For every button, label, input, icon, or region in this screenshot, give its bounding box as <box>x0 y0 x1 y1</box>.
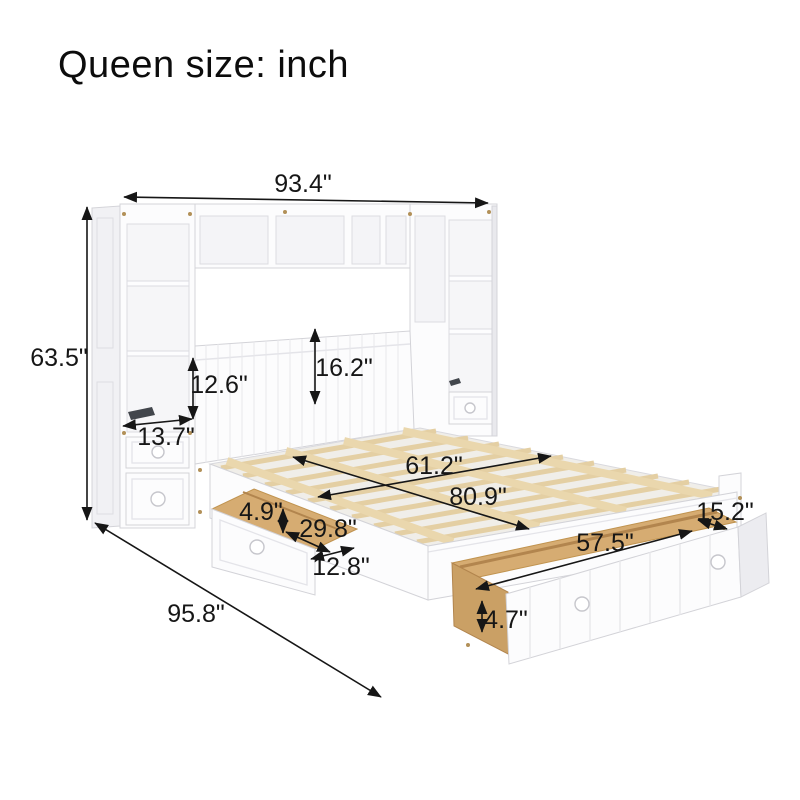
dim-overall-width: 93.4" <box>124 170 488 203</box>
dim-label: 80.9" <box>449 483 507 511</box>
dim-label: 63.5" <box>30 344 88 372</box>
right-tower-cavity <box>449 220 492 392</box>
left-tower-shelf <box>127 281 189 286</box>
dim-label: 12.8" <box>312 553 370 581</box>
dim-label: 29.8" <box>299 515 357 543</box>
left-tower-shelf <box>127 351 189 356</box>
dim-label: 16.2" <box>315 354 373 382</box>
dim-overall-height: 63.5" <box>30 207 88 520</box>
dim-label: 4.9" <box>239 498 283 526</box>
dim-label: 12.6" <box>190 371 248 399</box>
right-tower-shelf <box>449 276 492 281</box>
dim-trundle-extension: 15.2" <box>696 498 754 529</box>
dim-label: 95.8" <box>167 600 225 628</box>
dim-trundle-depth: 4.7" <box>482 601 528 634</box>
dim-label: 13.7" <box>137 423 195 451</box>
left-side-panel <box>92 206 120 528</box>
right-side-panel <box>492 206 497 436</box>
drawer-knob <box>151 492 165 506</box>
dim-label: 15.2" <box>696 498 754 526</box>
right-tower-shelf <box>449 329 492 334</box>
bridge-cubby <box>276 216 344 264</box>
bed-dimension-illustration: 93.4" 63.5" 12.6" 16.2" 13.7" 61.2" 80.9… <box>0 0 800 800</box>
drawer-knob <box>250 540 264 554</box>
dim-label: 93.4" <box>274 170 332 198</box>
diagram-canvas: Queen size: inch <box>0 0 800 800</box>
dim-label: 61.2" <box>405 452 463 480</box>
drawer-knob <box>575 597 589 611</box>
drawer-knob <box>711 555 725 569</box>
dim-label: 4.7" <box>484 606 528 634</box>
bridge-cubby <box>386 216 406 264</box>
right-tower-inner-cavity <box>415 216 445 322</box>
dim-side-drawer-width: 12.8" <box>311 548 370 581</box>
bridge-cubby <box>352 216 380 264</box>
left-tower-cavity <box>127 224 189 432</box>
drawer-knob <box>465 403 475 413</box>
bridge-cubby <box>200 216 268 264</box>
dim-label: 57.5" <box>576 529 634 557</box>
